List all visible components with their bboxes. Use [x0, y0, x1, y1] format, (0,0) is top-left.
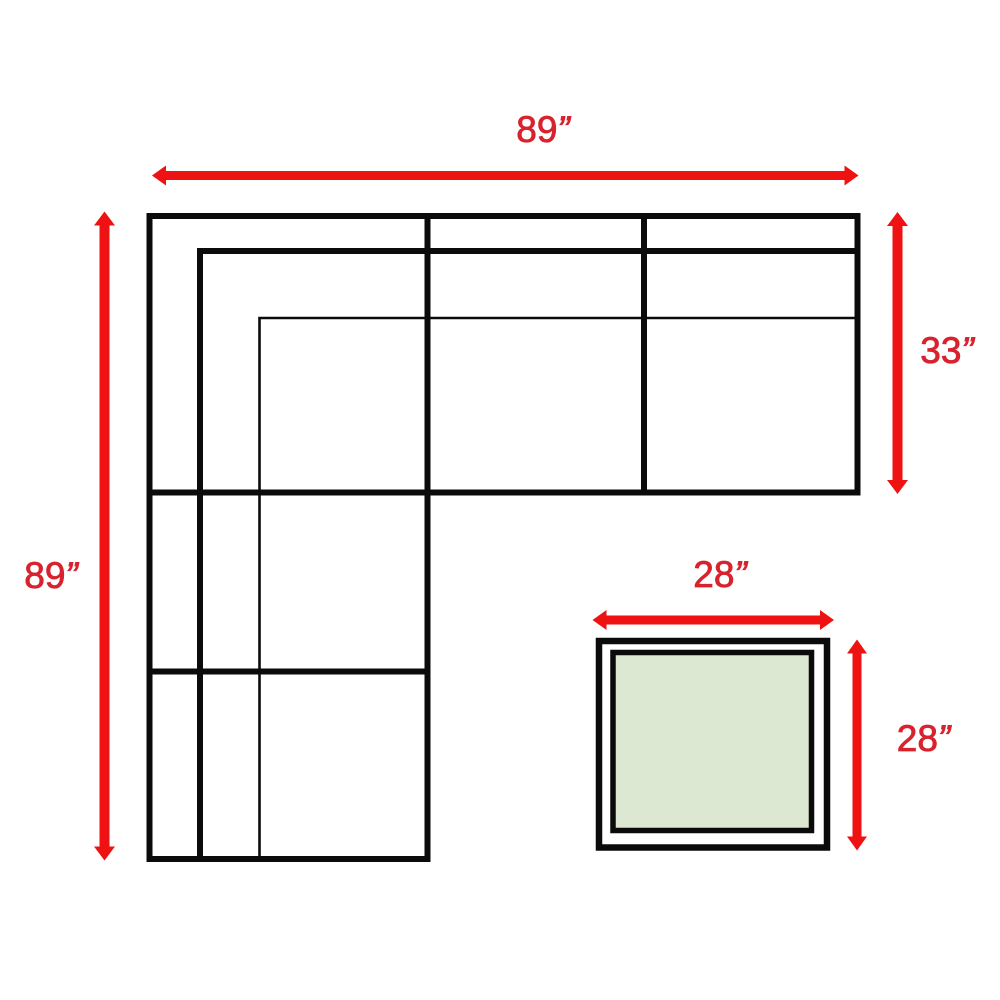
svg-text:28”: 28”	[693, 554, 748, 595]
svg-text:33”: 33”	[920, 330, 975, 371]
svg-text:28”: 28”	[897, 718, 952, 759]
svg-text:89”: 89”	[24, 555, 79, 596]
svg-text:89”: 89”	[516, 109, 571, 150]
